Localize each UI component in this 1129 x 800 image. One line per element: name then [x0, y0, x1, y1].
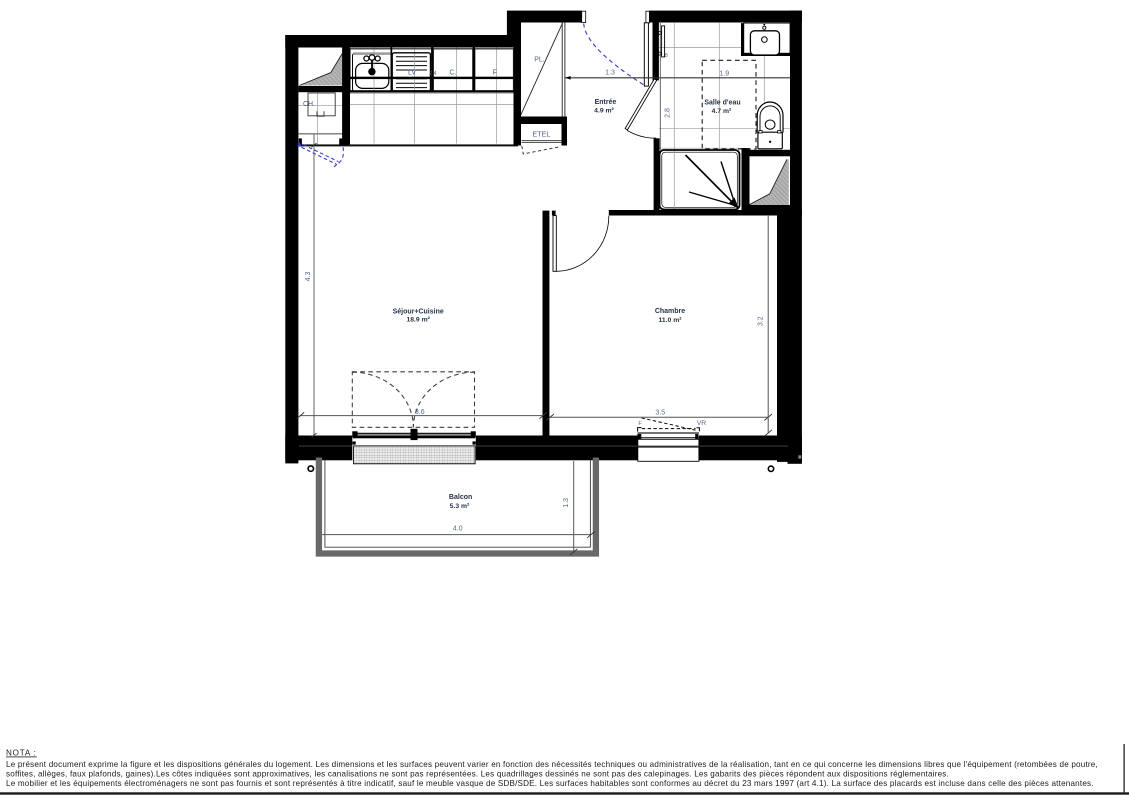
svg-text:C.: C.: [450, 69, 457, 76]
svg-text:LV: LV: [408, 69, 416, 76]
svg-text:ETEL: ETEL: [532, 130, 550, 139]
svg-text:Le présent document exprime la: Le présent document exprime la figure et…: [6, 760, 1098, 769]
svg-text:8: 8: [665, 53, 668, 59]
svg-text:1.9: 1.9: [719, 71, 729, 78]
svg-text:soffites, allèges, faux plafon: soffites, allèges, faux plafonds, gaines…: [6, 770, 949, 779]
svg-text:1.3: 1.3: [605, 70, 615, 77]
svg-text:NOTA :: NOTA :: [6, 749, 37, 758]
svg-text:F: F: [493, 69, 497, 76]
svg-text:4.3: 4.3: [305, 272, 312, 282]
svg-text:4.9 m²: 4.9 m²: [594, 107, 614, 114]
svg-text:11.0 m²: 11.0 m²: [658, 317, 682, 324]
svg-text:CH.: CH.: [303, 101, 315, 108]
svg-text:VR: VR: [697, 420, 707, 427]
svg-text:Séjour+Cuisine: Séjour+Cuisine: [393, 309, 444, 316]
svg-text:Salle d'eau: Salle d'eau: [704, 99, 740, 106]
svg-text:5.3 m²: 5.3 m²: [450, 503, 470, 510]
svg-text:Chambre: Chambre: [655, 308, 685, 315]
svg-text:Le mobilier et les équipements: Le mobilier et les équipements électromé…: [6, 779, 1094, 788]
svg-text:Balcon: Balcon: [449, 494, 472, 501]
svg-text:3.5: 3.5: [655, 409, 665, 416]
svg-text:18.9 m²: 18.9 m²: [406, 316, 430, 323]
svg-text:F: F: [638, 421, 642, 427]
svg-text:1.3: 1.3: [563, 498, 570, 508]
svg-text:3.2: 3.2: [758, 316, 765, 326]
svg-text:4.0: 4.0: [453, 525, 463, 532]
svg-text:4.7 m²: 4.7 m²: [712, 108, 732, 115]
svg-text:2.8: 2.8: [665, 108, 672, 118]
svg-text:Entrée: Entrée: [595, 99, 617, 106]
svg-text:PL.: PL.: [534, 56, 545, 63]
svg-text:2.4: 2.4: [429, 71, 437, 77]
svg-text:3.6: 3.6: [415, 409, 425, 416]
